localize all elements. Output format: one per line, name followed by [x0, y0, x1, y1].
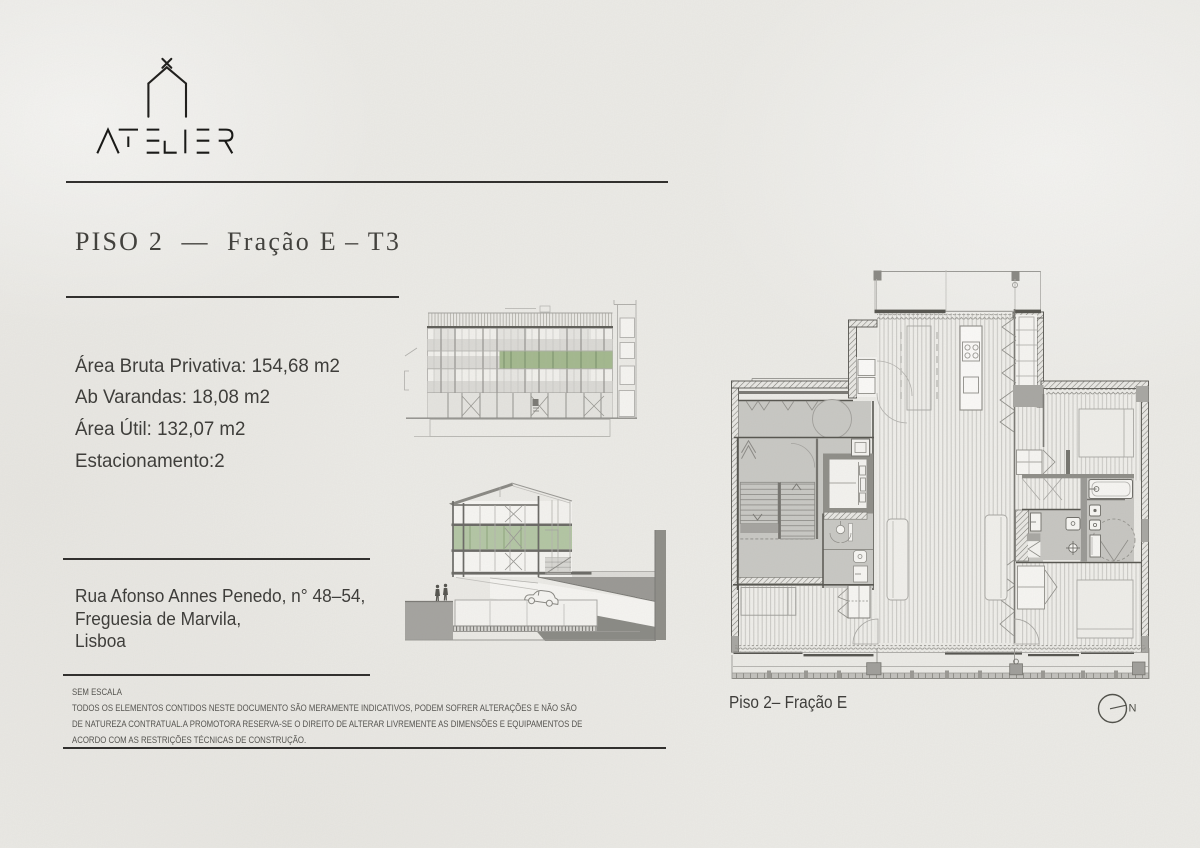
svg-text:N: N — [1129, 703, 1137, 715]
